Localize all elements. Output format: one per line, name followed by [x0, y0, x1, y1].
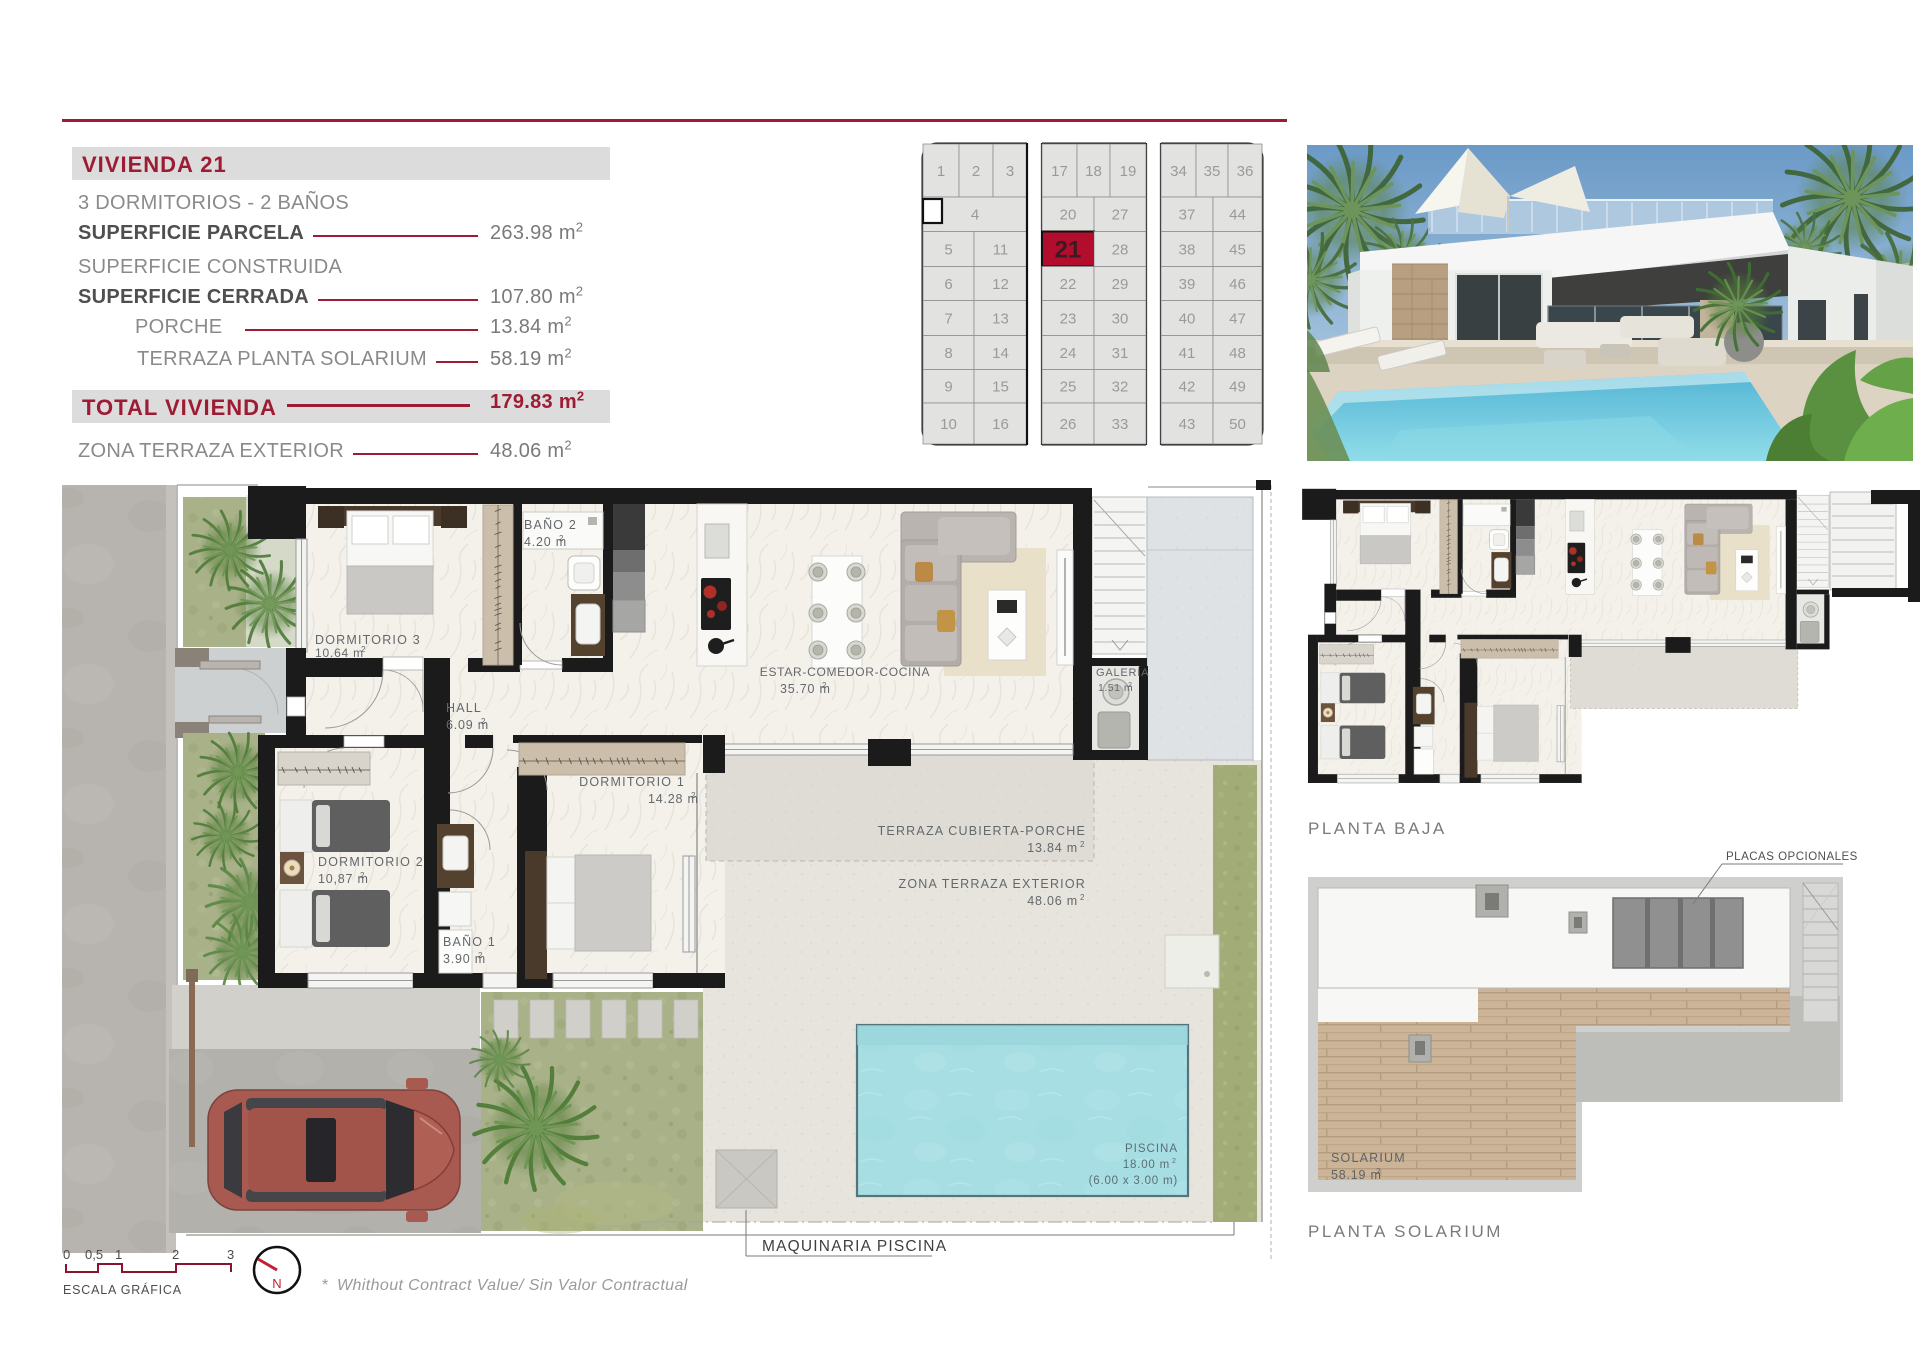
svg-text:2: 2 [1128, 682, 1132, 689]
svg-text:MAQUINARIA PISCINA: MAQUINARIA PISCINA [762, 1238, 947, 1255]
svg-text:2: 2 [361, 645, 366, 654]
svg-text:HALL: HALL [446, 701, 482, 715]
svg-text:2: 2 [172, 1247, 179, 1262]
svg-text:0,5: 0,5 [85, 1247, 103, 1262]
svg-text:2: 2 [691, 791, 696, 800]
svg-text:2: 2 [478, 951, 483, 960]
svg-text:18.00 m: 18.00 m [1123, 1159, 1170, 1171]
svg-text:DORMITORIO 1: DORMITORIO 1 [579, 775, 685, 789]
svg-text:ESTAR-COMEDOR-COCINA: ESTAR-COMEDOR-COCINA [760, 665, 930, 679]
svg-text:3: 3 [227, 1247, 234, 1262]
svg-text:BAÑO 1: BAÑO 1 [443, 935, 496, 949]
svg-text:13.84 m: 13.84 m [1027, 841, 1078, 855]
svg-text:SOLARIUM: SOLARIUM [1331, 1151, 1406, 1165]
svg-text:2: 2 [1172, 1158, 1176, 1165]
svg-text:BAÑO 2: BAÑO 2 [524, 518, 577, 532]
svg-text:2: 2 [481, 717, 486, 726]
svg-text:N: N [272, 1276, 281, 1291]
svg-text:TERRAZA CUBIERTA-PORCHE: TERRAZA CUBIERTA-PORCHE [878, 824, 1086, 838]
svg-text:10.64 m: 10.64 m [315, 646, 364, 660]
svg-text:2: 2 [822, 681, 827, 690]
svg-text:PLACAS OPCIONALES: PLACAS OPCIONALES [1726, 851, 1858, 863]
svg-text:(6.00 x 3.00 m): (6.00 x 3.00 m) [1089, 1175, 1178, 1187]
svg-text:2: 2 [559, 534, 564, 543]
svg-text:ESCALA GRÁFICA: ESCALA GRÁFICA [63, 1282, 182, 1297]
svg-text:PLANTA BAJA: PLANTA BAJA [1308, 819, 1447, 838]
svg-text:Whithout Contract Value/ Sin V: Whithout Contract Value/ Sin Valor Contr… [337, 1277, 688, 1294]
svg-text:48.06 m: 48.06 m [1027, 894, 1078, 908]
svg-text:2: 2 [1080, 840, 1085, 849]
svg-text:2: 2 [1376, 1167, 1381, 1176]
svg-text:2: 2 [1080, 893, 1085, 902]
svg-text:1: 1 [115, 1247, 122, 1262]
svg-text:DORMITORIO 3: DORMITORIO 3 [315, 633, 421, 647]
svg-text:58.19 m: 58.19 m [1331, 1168, 1382, 1182]
svg-text:2: 2 [360, 871, 365, 880]
svg-text:PISCINA: PISCINA [1125, 1143, 1178, 1155]
svg-text:PLANTA SOLARIUM: PLANTA SOLARIUM [1308, 1222, 1503, 1241]
svg-text:0: 0 [63, 1247, 70, 1262]
svg-text:*: * [322, 1277, 328, 1294]
svg-text:GALERÍA: GALERÍA [1096, 666, 1149, 679]
svg-text:DORMITORIO 2: DORMITORIO 2 [318, 855, 424, 869]
svg-text:ZONA TERRAZA EXTERIOR: ZONA TERRAZA EXTERIOR [899, 877, 1087, 891]
